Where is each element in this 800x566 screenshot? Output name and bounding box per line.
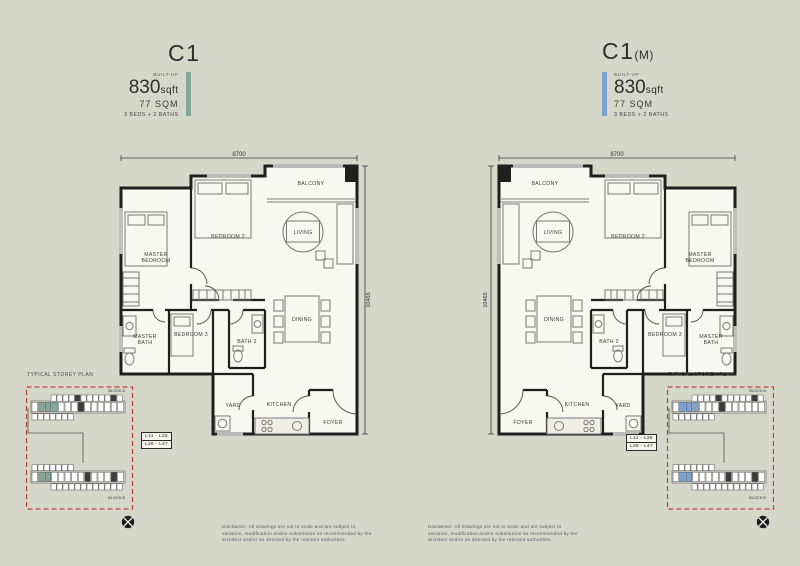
unit-title-text: C1 — [602, 38, 634, 64]
plan-geometry — [119, 155, 368, 436]
accent-bar — [186, 72, 191, 116]
beds-baths: 3 BEDS + 2 BATHS — [614, 112, 669, 118]
room-label-living: LIVING — [544, 230, 563, 236]
block-a-strip — [672, 395, 766, 420]
compass-icon — [757, 516, 770, 529]
room-label-foyer: FOYER — [513, 420, 532, 426]
area-sqft: 830sqft — [614, 78, 664, 97]
accent-bar — [602, 72, 607, 116]
room-label-bedroom3: BEDROOM 3 — [648, 332, 682, 338]
level-range-box: L11 - L25 L26 - L47 — [626, 434, 657, 451]
area-sqm: 77 SQM — [140, 99, 179, 109]
level-range: L11 - L25 — [627, 435, 656, 442]
area-value: 830 — [129, 77, 161, 98]
room-label-balcony: BALCONY — [532, 181, 559, 187]
unit-info-c1m: BUILT-UP 830sqft 77 SQM 3 BEDS + 2 BATHS — [602, 72, 669, 118]
unit-title-c1m: C1(M) — [602, 38, 654, 65]
brochure-page: K N L C1 BUILT-UP 830sqft 77 SQM 3 BEDS … — [0, 0, 800, 566]
dim-width-label: 8700 — [232, 152, 246, 158]
unit-title-text: C1 — [168, 40, 200, 66]
beds-baths: 3 BEDS + 2 BATHS — [124, 112, 179, 118]
area-unit: sqft — [646, 85, 664, 96]
room-label-bedroom3: BEDROOM 3 — [174, 332, 208, 338]
unit-title-c1: C1 — [168, 40, 200, 67]
area-sqm: 77 SQM — [614, 99, 653, 109]
room-label-yard: YARD — [225, 403, 240, 409]
disclaimer-left: Disclaimer: All drawings are not to scal… — [222, 524, 374, 544]
block-a-label: BLOCK A — [108, 388, 125, 393]
unit-title-suffix: (M) — [634, 48, 654, 62]
dim-depth-label: 10465 — [483, 292, 489, 307]
block-b-label: BLOCK B — [749, 495, 766, 500]
area-value: 830 — [614, 77, 646, 98]
room-label-foyer: FOYER — [323, 420, 342, 426]
level-range: L26 - L47 — [142, 440, 171, 448]
room-label-bedroom2: BEDROOM 2 — [611, 234, 645, 240]
room-label-master_bedroom: MASTERBEDROOM — [686, 252, 715, 264]
level-range-box: L11 - L25 L26 - L47 — [141, 432, 172, 449]
storey-plan-title: TYPICAL STOREY PLAN — [27, 372, 137, 378]
area-sqft: 830sqft — [129, 78, 179, 97]
unit-info-c1: BUILT-UP 830sqft 77 SQM 3 BEDS + 2 BATHS — [124, 72, 191, 118]
room-label-dining: DINING — [544, 317, 564, 323]
block-a-strip — [31, 395, 125, 420]
area-unit: sqft — [160, 85, 178, 96]
compass-icon — [122, 516, 135, 529]
storey-plan-svg: BLOCK ABLOCK B — [25, 381, 137, 533]
block-a-label: BLOCK A — [749, 388, 766, 393]
storey-plan-right: TYPICAL STOREY PLAN BLOCK ABLOCK B — [666, 372, 778, 538]
dim-depth-label: 10465 — [366, 292, 372, 307]
room-label-bedroom2: BEDROOM 2 — [211, 234, 245, 240]
dim-width-label: 8700 — [610, 152, 624, 158]
block-b-label: BLOCK B — [108, 495, 125, 500]
storey-plan-svg: BLOCK ABLOCK B — [666, 381, 778, 533]
room-label-living: LIVING — [294, 230, 313, 236]
level-range: L26 - L47 — [627, 442, 656, 450]
floorplan-svg-c1: 870010465MASTERBEDROOMBEDROOM 2BALCONYLI… — [113, 150, 373, 452]
storey-plan-left: TYPICAL STOREY PLAN BLOCK ABLOCK B — [25, 372, 137, 538]
room-label-balcony: BALCONY — [298, 181, 325, 187]
storey-plan-title: TYPICAL STOREY PLAN — [668, 372, 778, 378]
room-label-bath2: BATH 2 — [237, 339, 257, 345]
room-label-master_bedroom: MASTERBEDROOM — [142, 252, 171, 264]
floorplan-c1: 870010465MASTERBEDROOMBEDROOM 2BALCONYLI… — [113, 150, 373, 452]
block-b-strip — [31, 465, 125, 491]
room-label-kitchen: KITCHEN — [565, 402, 590, 408]
room-label-kitchen: KITCHEN — [267, 402, 292, 408]
room-label-yard: YARD — [615, 403, 630, 409]
room-label-bath2: BATH 2 — [599, 339, 619, 345]
room-label-dining: DINING — [292, 317, 312, 323]
disclaimer-right: Disclaimer: All drawings are not to scal… — [428, 524, 580, 544]
level-range: L11 - L25 — [142, 433, 171, 440]
block-b-strip — [672, 465, 766, 491]
